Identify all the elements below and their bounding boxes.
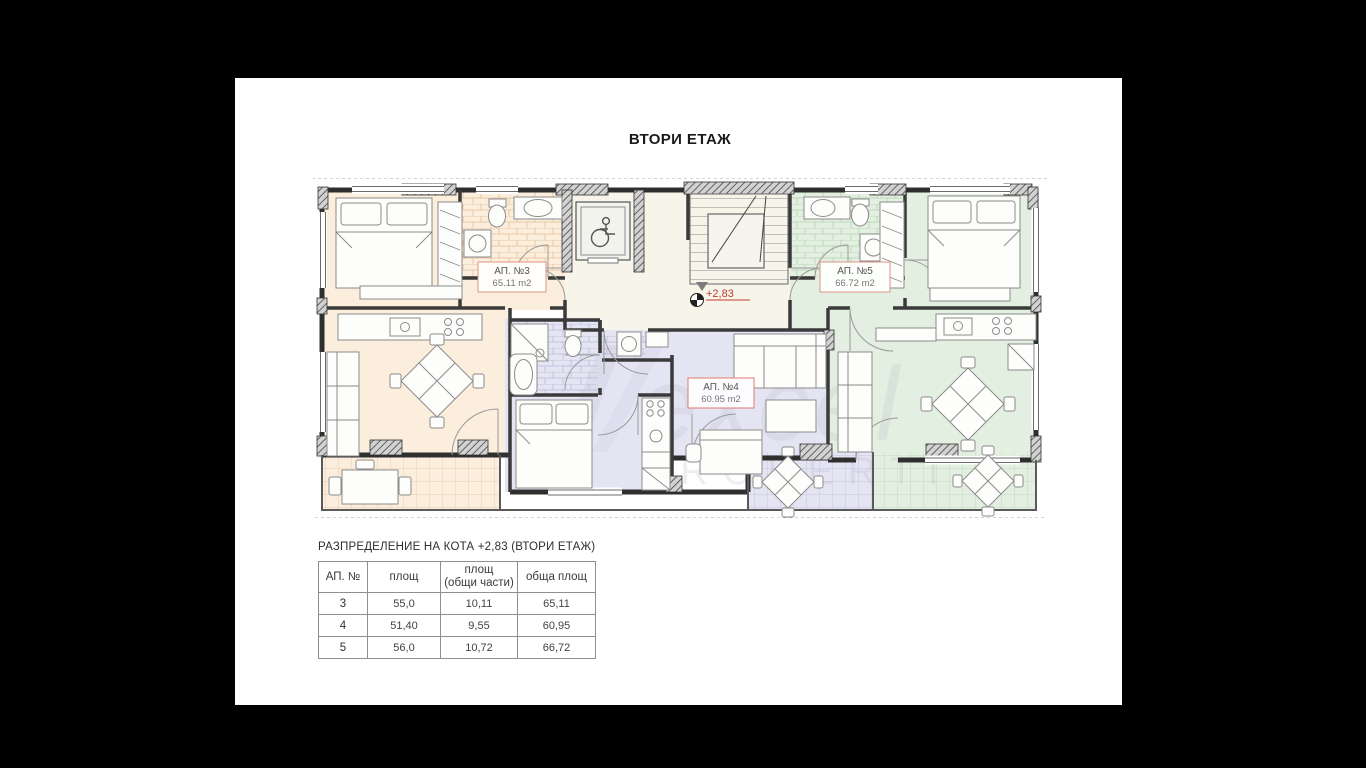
col-header-total-area: обща площ	[518, 562, 596, 593]
col-header-apartment-number: АП. №	[319, 562, 368, 593]
wardrobe-ap3	[438, 202, 462, 292]
distribution-title: РАЗПРЕДЕЛЕНИЕ НА КОТА +2,83 (ВТОРИ ЕТАЖ)	[318, 541, 596, 553]
cell-ap4-area: 51,40	[368, 615, 441, 637]
label-ap3: АП. №3 65.11 m2	[478, 262, 546, 292]
coffee-table-ap4	[766, 400, 816, 432]
label-ap3-name: АП. №3	[494, 266, 530, 277]
label-ap4: АП. №4 60.95 m2	[688, 378, 754, 408]
table-row-ap5: 5 56,0 10,72 66,72	[319, 637, 596, 659]
viewer-canvas: ВТОРИ ЕТАЖ	[0, 0, 1366, 768]
label-ap4-area: 60.95 m2	[701, 394, 741, 405]
floor-plan: excel PROPERTI	[313, 178, 1047, 518]
sink-wc-ap4	[646, 332, 668, 347]
table-header-row: АП. № площ площ (общи части) обща площ	[319, 562, 596, 593]
washing-machine-ap4	[617, 332, 641, 356]
table-row-ap3: 3 55,0 10,11 65,11	[319, 593, 596, 615]
toilet-ap5	[852, 199, 870, 226]
cell-ap3-number: 3	[319, 593, 368, 615]
sofa-ap5	[838, 352, 872, 452]
bed-ap3	[336, 198, 432, 288]
dresser-ap3	[360, 286, 462, 299]
floor-title: ВТОРИ ЕТАЖ	[313, 131, 1047, 148]
level-marker-value: +2,83	[706, 288, 734, 300]
bed-ap5	[928, 196, 1020, 288]
elevator	[576, 202, 630, 263]
sofa-ap3	[327, 352, 359, 456]
col-header-common-area: площ (общи части)	[441, 562, 518, 593]
toilet-ap3	[489, 199, 507, 227]
cell-ap5-total: 66,72	[518, 637, 596, 659]
cell-ap3-total: 65,11	[518, 593, 596, 615]
cell-ap3-area: 55,0	[368, 593, 441, 615]
bathtub-sink-ap4	[510, 354, 537, 395]
cell-ap4-number: 4	[319, 615, 368, 637]
col-header-area: площ	[368, 562, 441, 593]
cell-ap5-number: 5	[319, 637, 368, 659]
distribution-section: РАЗПРЕДЕЛЕНИЕ НА КОТА +2,83 (ВТОРИ ЕТАЖ)…	[318, 541, 596, 659]
toilet-ap4	[565, 330, 581, 357]
cell-ap3-common: 10,11	[441, 593, 518, 615]
sink-ap5	[804, 197, 850, 219]
distribution-table: АП. № площ площ (общи части) обща площ 3…	[318, 561, 596, 659]
table-row-ap4: 4 51,40 9,55 60,95	[319, 615, 596, 637]
bed-ap4	[516, 400, 592, 488]
label-ap3-area: 65.11 m2	[493, 278, 532, 289]
label-ap5-area: 66.72 m2	[835, 278, 875, 289]
kitchen-ap3	[338, 314, 482, 340]
label-ap4-name: АП. №4	[703, 382, 739, 393]
drawing-sheet: ВТОРИ ЕТАЖ	[235, 78, 1122, 705]
tv-board-ap5	[876, 328, 936, 341]
kitchen-ap4	[642, 398, 670, 490]
washing-machine-ap3	[464, 230, 491, 257]
label-ap5: АП. №5 66.72 m2	[820, 262, 890, 292]
label-ap5-name: АП. №5	[837, 266, 873, 277]
cell-ap4-total: 60,95	[518, 615, 596, 637]
cell-ap5-common: 10,72	[441, 637, 518, 659]
cell-ap5-area: 56,0	[368, 637, 441, 659]
staircase	[690, 194, 788, 291]
cell-ap4-common: 9,55	[441, 615, 518, 637]
dresser-ap5	[930, 288, 1010, 301]
sink-ap3	[514, 197, 562, 219]
